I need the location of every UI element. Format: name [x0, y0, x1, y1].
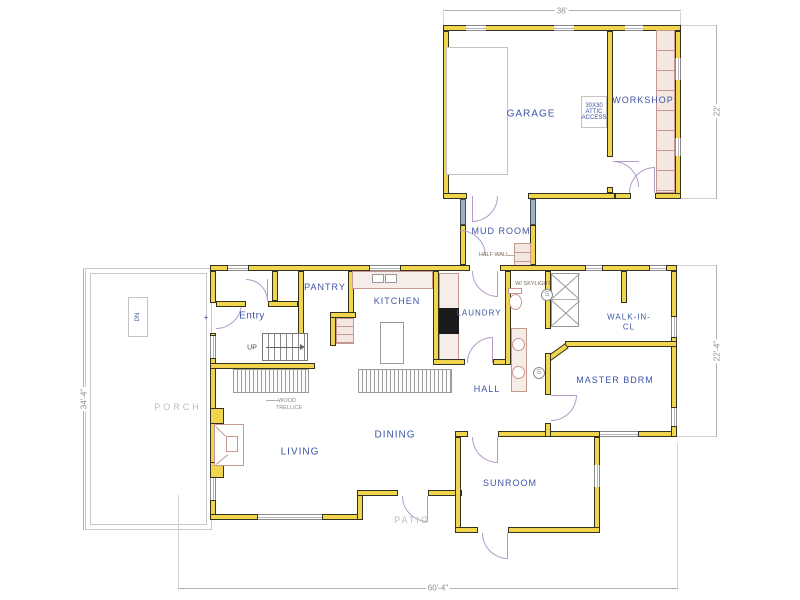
window — [228, 265, 248, 271]
shower-note-label: W/ SKYLIGHT — [515, 281, 550, 287]
door-arc — [472, 271, 498, 297]
window — [675, 58, 681, 80]
door-arc — [472, 196, 498, 222]
plus-marker: + — [204, 315, 209, 321]
wall — [455, 527, 478, 533]
wall — [565, 341, 677, 347]
wall — [655, 193, 681, 199]
wall — [455, 437, 461, 533]
door-leaf — [472, 196, 473, 222]
toilet-bowl — [509, 294, 522, 310]
window — [258, 514, 290, 520]
room-label-walkin: WALK-IN- — [607, 313, 651, 322]
closet-shelves — [336, 318, 354, 344]
dimension-label-garage-depth: 22' — [713, 104, 722, 118]
leader-line — [507, 255, 514, 256]
door-arc — [246, 279, 268, 301]
window — [671, 317, 677, 337]
floor-plan: DN PORCH 30X30 ATTIC ACCESS GARAGE WORKS… — [0, 0, 800, 600]
wood-trellis — [233, 369, 309, 393]
room-label-workshop: WORKSHOP — [612, 95, 674, 105]
window — [290, 514, 322, 520]
wall — [545, 423, 551, 437]
wood-trellis-label: WOOD — [278, 398, 296, 404]
extension-line — [677, 436, 716, 437]
wall — [671, 271, 677, 317]
door-leaf — [497, 437, 498, 463]
fireplace-flue — [226, 436, 238, 452]
dimension-label-house-width: 60'-4" — [426, 584, 450, 593]
window — [210, 478, 216, 500]
wall — [357, 490, 398, 496]
room-label-pantry: PANTRY — [304, 282, 346, 292]
glazed-wall-post — [530, 199, 536, 225]
dn-label: DN — [135, 313, 141, 322]
window — [650, 265, 666, 271]
door-leaf — [551, 395, 577, 396]
up-label: UP — [247, 345, 257, 352]
vanity-sink — [512, 338, 525, 351]
workshop-shelves — [656, 30, 675, 193]
wall — [607, 31, 613, 157]
room-label-mudroom: MUD ROOM — [472, 226, 531, 236]
attic-access-label: ACCESS — [582, 115, 607, 121]
extension-line — [681, 198, 717, 199]
extension-line — [677, 265, 716, 266]
smoke-detector-symbol: S — [533, 367, 545, 379]
room-label-kitchen: KITCHEN — [374, 296, 421, 306]
wall — [607, 187, 613, 193]
window — [594, 465, 600, 487]
extension-line — [178, 495, 179, 588]
shower-divider — [551, 299, 579, 300]
kitchen-island — [380, 322, 404, 364]
wall — [210, 271, 216, 303]
window — [625, 25, 643, 31]
wall — [216, 301, 246, 307]
window — [466, 25, 486, 31]
kitchen-sink — [372, 274, 384, 283]
stair-direction-arrow — [300, 344, 305, 350]
smoke-detector-symbol: S — [541, 289, 553, 301]
window — [600, 431, 638, 437]
half-wall-label: HALF WALL — [479, 252, 509, 258]
door-leaf — [507, 533, 508, 559]
wall — [615, 193, 631, 199]
wall — [671, 337, 677, 408]
room-label-hall: HALL — [474, 384, 501, 394]
door-leaf — [497, 271, 498, 297]
wall — [545, 353, 551, 395]
room-label-master: MASTER BDRM — [576, 375, 654, 385]
window — [586, 265, 602, 271]
window — [210, 336, 216, 358]
room-label-laundry: LAUNDRY — [456, 309, 501, 318]
room-label-garage: GARAGE — [507, 109, 556, 120]
kitchen-sink — [385, 274, 397, 283]
wall — [500, 265, 586, 271]
wood-trellis — [358, 369, 452, 393]
door-leaf — [613, 161, 639, 162]
room-label-walkin: CL — [623, 323, 635, 332]
extension-line — [443, 12, 444, 25]
door-leaf — [492, 337, 493, 363]
leader-line — [266, 400, 280, 401]
dimension-label-master-depth: 22'-4" — [713, 339, 722, 363]
vanity-sink — [512, 366, 525, 379]
wall — [508, 527, 600, 533]
dimension-label-garage-width: 36' — [555, 7, 569, 16]
door-arc — [482, 533, 508, 559]
wall — [268, 301, 298, 307]
extension-line — [680, 12, 681, 25]
stair-direction-line — [266, 347, 300, 348]
wall — [210, 408, 224, 424]
wall — [272, 271, 278, 301]
room-label-entry: Entry — [239, 311, 265, 322]
wall — [675, 31, 681, 199]
wall — [621, 271, 627, 303]
room-label-living: LIVING — [281, 447, 320, 458]
room-label-sunroom: SUNROOM — [483, 478, 537, 488]
window — [554, 25, 574, 31]
door-leaf — [267, 279, 268, 301]
wall — [210, 514, 258, 520]
room-label-dining: DINING — [375, 430, 416, 441]
porch-inner-outline — [90, 273, 207, 525]
glazed-wall-post — [460, 199, 466, 225]
wall — [528, 193, 615, 199]
door-arc — [472, 437, 498, 463]
door-arc — [467, 337, 493, 363]
room-label-porch: PORCH — [154, 402, 202, 412]
window — [671, 408, 677, 426]
wall — [433, 359, 465, 365]
shower — [551, 273, 579, 327]
wood-trellis-label: TRELLICE — [276, 405, 302, 411]
room-label-patio: PATIO — [394, 515, 430, 525]
wall — [210, 333, 216, 336]
extension-line — [681, 25, 717, 26]
door-leaf — [654, 167, 655, 193]
dimension-label-house-depth: 34'-4" — [80, 387, 89, 411]
garage-slab-outline — [446, 47, 508, 175]
extension-line — [677, 443, 678, 588]
window — [675, 138, 681, 156]
door-arc — [551, 395, 577, 421]
